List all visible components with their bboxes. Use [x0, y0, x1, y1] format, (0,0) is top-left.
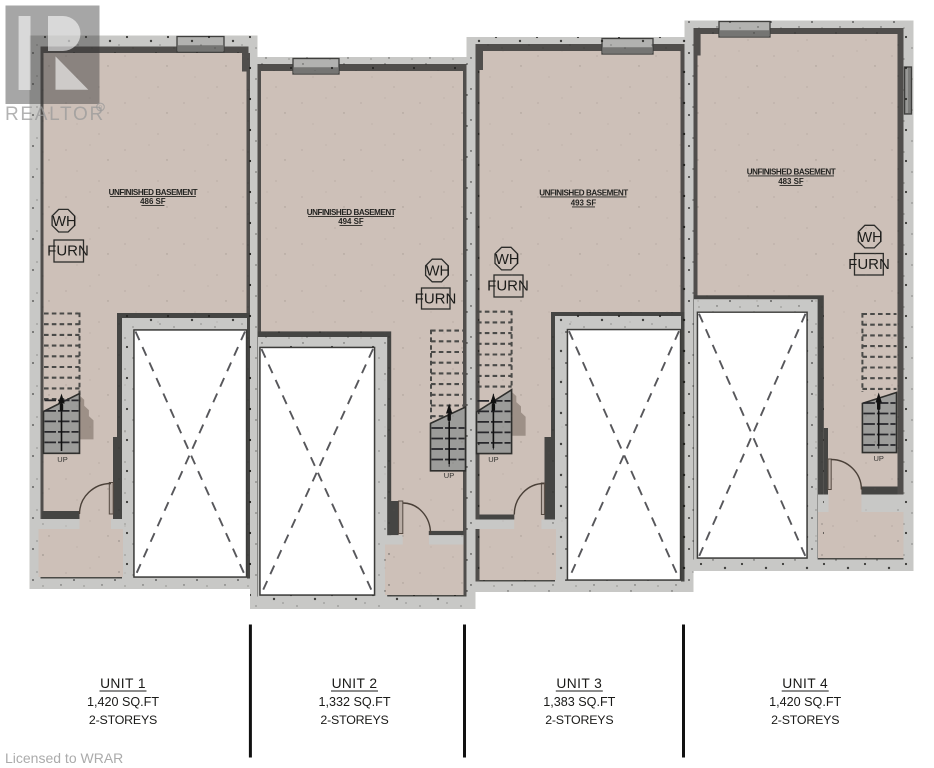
svg-text:UNIT 4: UNIT 4: [782, 676, 828, 691]
svg-text:UNIT 1: UNIT 1: [100, 676, 146, 691]
svg-text:2-STOREYS: 2-STOREYS: [320, 713, 388, 727]
svg-text:Licensed to WRAR: Licensed to WRAR: [5, 750, 123, 766]
svg-text:1,420 SQ.FT: 1,420 SQ.FT: [769, 695, 841, 709]
svg-text:1,332 SQ.FT: 1,332 SQ.FT: [318, 695, 390, 709]
svg-text:1,383 SQ.FT: 1,383 SQ.FT: [543, 695, 615, 709]
svg-text:UNIT 3: UNIT 3: [556, 676, 602, 691]
svg-text:UNIT 2: UNIT 2: [332, 676, 378, 691]
svg-text:2-STOREYS: 2-STOREYS: [771, 713, 839, 727]
svg-text:1,420 SQ.FT: 1,420 SQ.FT: [87, 695, 159, 709]
svg-text:2-STOREYS: 2-STOREYS: [545, 713, 613, 727]
svg-text:R: R: [99, 106, 103, 112]
svg-text:REALTOR: REALTOR: [5, 104, 105, 125]
svg-text:2-STOREYS: 2-STOREYS: [89, 713, 157, 727]
